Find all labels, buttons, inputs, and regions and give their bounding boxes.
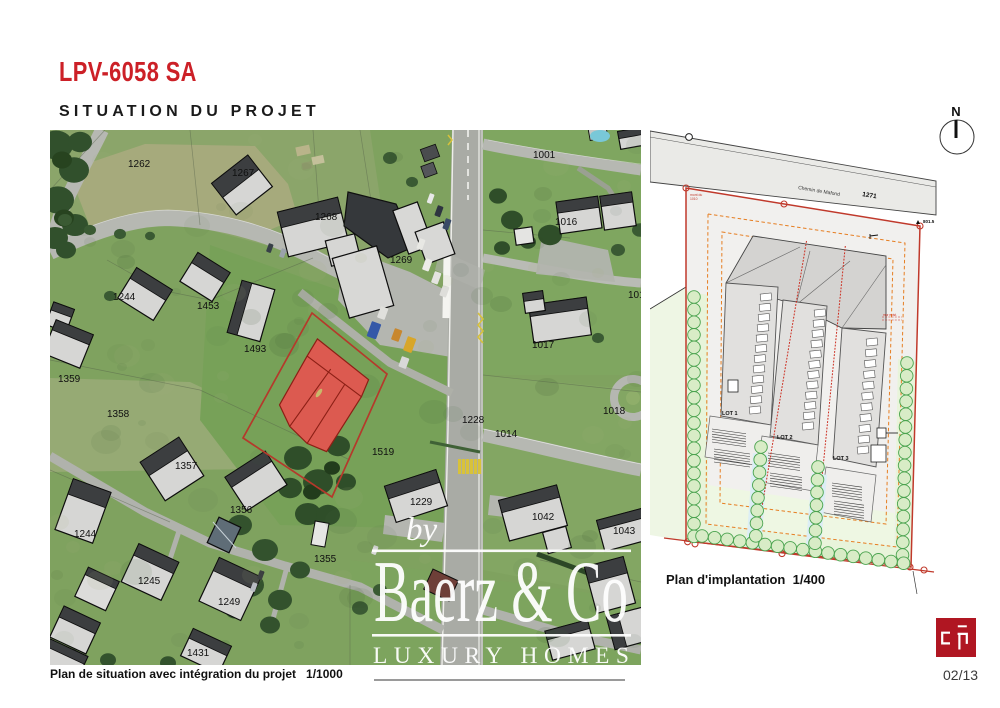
svg-text:1357: 1357 xyxy=(175,461,198,472)
svg-text:LOT 3: LOT 3 xyxy=(833,456,849,462)
svg-text:1244: 1244 xyxy=(113,292,136,303)
svg-text:LOT 2: LOT 2 xyxy=(777,435,793,441)
svg-text:1519: 1519 xyxy=(372,447,395,458)
svg-text:by: by xyxy=(406,512,438,548)
svg-text:1042: 1042 xyxy=(532,512,555,523)
svg-text:1244: 1244 xyxy=(74,529,97,540)
svg-text:1431: 1431 xyxy=(187,648,210,659)
svg-text:1358: 1358 xyxy=(107,409,130,420)
svg-text:1356: 1356 xyxy=(230,505,253,516)
svg-text:1017: 1017 xyxy=(532,340,555,351)
svg-text:1269: 1269 xyxy=(390,255,413,266)
svg-text:N: N xyxy=(951,104,960,119)
svg-text:1018: 1018 xyxy=(603,406,626,417)
svg-text:1493: 1493 xyxy=(244,344,267,355)
svg-text:1268: 1268 xyxy=(315,212,338,223)
svg-text:1245: 1245 xyxy=(138,576,161,587)
svg-text:101: 101 xyxy=(628,290,641,301)
svg-text:1228: 1228 xyxy=(462,415,485,426)
svg-text:801.5: 801.5 xyxy=(923,219,935,224)
svg-text:1267: 1267 xyxy=(232,168,255,179)
svg-text:1010: 1010 xyxy=(690,197,698,201)
svg-text:Baerz & Co: Baerz & Co xyxy=(374,544,628,641)
svg-text:1249: 1249 xyxy=(218,597,241,608)
svg-text:1453: 1453 xyxy=(197,301,220,312)
svg-text:1016: 1016 xyxy=(555,217,578,228)
svg-text:mur exist.: mur exist. xyxy=(883,313,897,317)
svg-text:1043: 1043 xyxy=(613,526,636,537)
svg-text:1001: 1001 xyxy=(533,150,556,161)
svg-text:1262: 1262 xyxy=(128,159,151,170)
svg-text:LOT 1: LOT 1 xyxy=(722,411,738,417)
svg-text:1229: 1229 xyxy=(410,497,433,508)
svg-text:1355: 1355 xyxy=(314,554,337,565)
svg-text:1014: 1014 xyxy=(495,429,518,440)
svg-text:1359: 1359 xyxy=(58,374,81,385)
